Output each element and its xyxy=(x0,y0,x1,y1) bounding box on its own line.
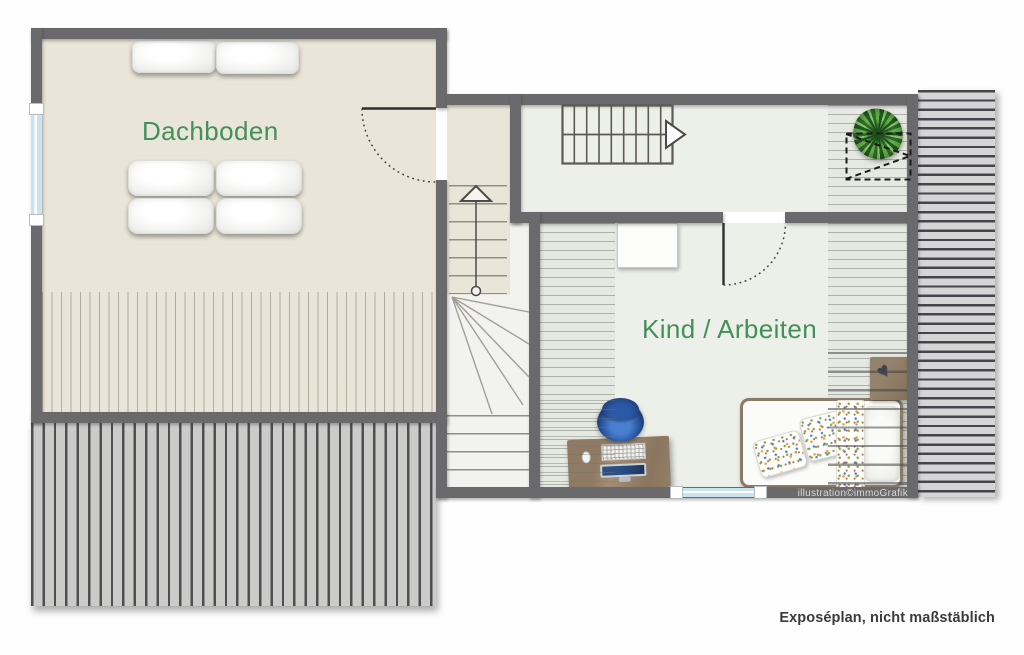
wall-dachboden-right-lower xyxy=(436,180,447,498)
wall-shelf: ♥ xyxy=(870,357,908,400)
roof-band-right xyxy=(918,90,995,497)
mouse xyxy=(581,451,591,463)
monitor-stand xyxy=(619,477,631,483)
window-glazing xyxy=(682,488,755,497)
mattress-top-left xyxy=(132,40,216,73)
stair-treads-lower-run xyxy=(447,415,529,487)
sofa-cushion xyxy=(216,160,302,196)
room-label-kind-arbeiten: Kind / Arbeiten xyxy=(642,314,817,345)
sofa-mattress-group xyxy=(128,160,302,234)
keyboard xyxy=(601,443,646,461)
desk xyxy=(567,436,671,491)
window-bottom xyxy=(670,486,767,499)
sofa-cushion xyxy=(128,160,214,196)
wall-hall-left xyxy=(510,94,521,223)
window-frame-cap xyxy=(29,214,44,226)
wall-dachboden-right-upper xyxy=(436,28,447,108)
office-chair xyxy=(597,401,644,442)
wall-dachboden-top xyxy=(31,28,447,39)
roof-slope-hatch-dachboden xyxy=(42,292,436,412)
watermark-text: illustration©immoGrafik xyxy=(798,488,908,499)
window-frame-cap xyxy=(754,486,767,499)
wall-divider-right xyxy=(785,212,918,223)
heart-decor-icon: ♥ xyxy=(872,359,895,385)
spotted-pillow xyxy=(752,429,809,479)
window-glazing xyxy=(31,115,42,214)
stair-treads-upper-run xyxy=(449,185,507,294)
sofa-cushion xyxy=(128,198,214,234)
head-pillow xyxy=(864,406,900,482)
sofa-cushion xyxy=(216,198,302,234)
roof-band-bottom-left xyxy=(31,423,436,606)
monitor xyxy=(600,463,647,478)
window-frame-cap xyxy=(670,486,683,499)
spotted-blanket xyxy=(836,400,865,488)
footnote-text: Exposéplan, nicht maßstäblich xyxy=(779,610,995,626)
mattress-top-right xyxy=(216,41,299,74)
window-left xyxy=(29,103,44,226)
bed xyxy=(740,398,903,488)
window-frame-cap xyxy=(29,103,44,115)
wall-stairwell-right xyxy=(529,212,540,498)
wall-dachboden-bottom xyxy=(31,412,447,423)
chair-backrest xyxy=(602,398,639,421)
floorplan-canvas: ♥ xyxy=(0,0,1024,655)
room-label-dachboden: Dachboden xyxy=(142,116,279,147)
wall-divider-left xyxy=(510,212,723,223)
wardrobe xyxy=(617,223,678,268)
wall-outer-right xyxy=(907,94,918,497)
